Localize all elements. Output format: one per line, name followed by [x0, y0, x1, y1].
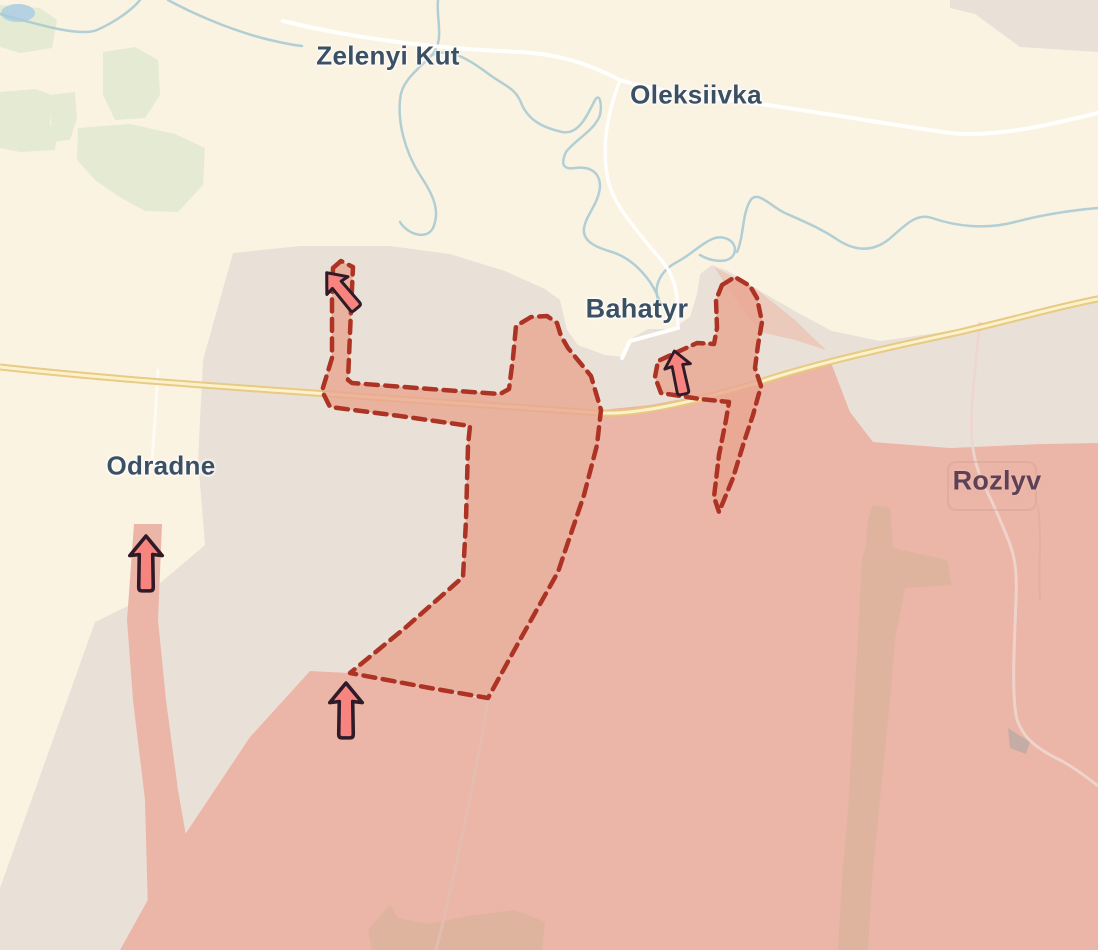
map-layers [0, 0, 1098, 950]
map-canvas[interactable]: Zelenyi Kut Oleksiivka Bahatyr Odradne R… [0, 0, 1098, 950]
